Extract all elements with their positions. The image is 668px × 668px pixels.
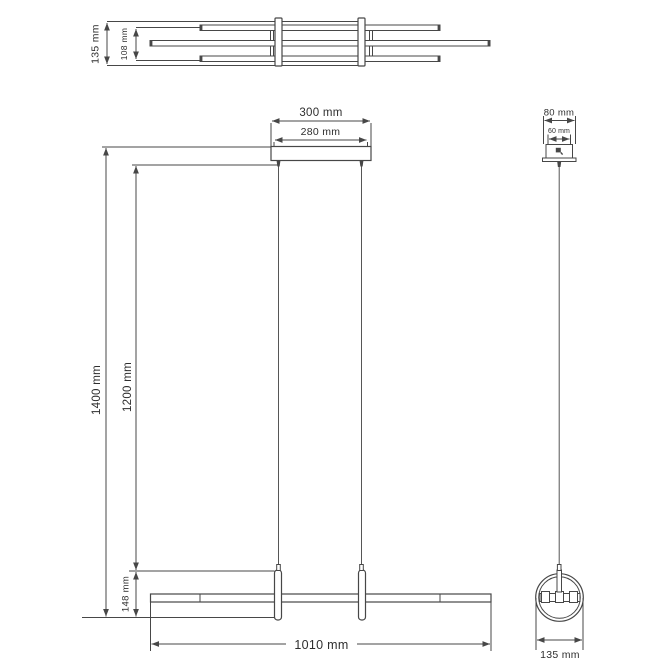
front-dim-1400-label: 1400 mm [91,365,103,415]
front-view: 300 mm 280 mm 1400 mm 1200 mm 148 mm [82,107,491,652]
top-left-ring [275,18,282,66]
side-canopy-plate [543,158,577,162]
tube-endcap [438,25,440,31]
front-dim-1200-label: 1200 mm [122,362,134,412]
side-dim-80-label: 80 mm [544,107,575,118]
top-tube-front [200,56,440,62]
front-right-cable-gland [360,161,364,167]
side-wire-cap [557,565,561,571]
side-cable-gland [258,162,561,168]
side-canopy-connector [556,148,561,153]
dimension-drawing: 135 mm 108 mm 300 mm 280 mm [0,0,668,668]
top-tube-middle [150,41,490,47]
side-tube-end-center [556,592,564,603]
side-dim-135-label: 135 mm [540,649,580,661]
front-left-cable-gland [277,161,281,167]
side-dim-135-ext [536,598,583,650]
tube-endcap [150,41,152,47]
top-tube-back [200,25,440,31]
front-right-wire-cap [360,565,364,571]
side-view: 80 mm 60 mm 135 mm [258,107,583,661]
top-dim-135-label: 135 mm [90,24,102,64]
tube-endcap [438,56,440,62]
tube-endcap [200,56,202,62]
tube-endcap [488,41,490,47]
front-dim-280-label: 280 mm [301,126,341,138]
top-view: 135 mm 108 mm [90,18,490,66]
front-left-wire-cap [277,565,281,571]
side-drop-rod [557,570,562,592]
front-dim-280-ext [274,142,368,146]
front-left-ring-edge [275,570,282,620]
drawing-svg: 135 mm 108 mm 300 mm 280 mm [0,0,668,668]
front-right-ring-edge [359,570,366,620]
front-dim-1010-label: 1010 mm [294,638,348,652]
side-tube-end-left [542,592,550,603]
side-tube-end-right [570,592,578,603]
front-dim-148-label: 148 mm [120,576,131,612]
top-dim-108-label: 108 mm [119,28,129,61]
front-canopy [271,147,371,161]
side-dim-60-label: 60 mm [548,128,570,135]
tube-endcap [200,25,202,31]
top-right-ring [358,18,365,66]
front-dim-300-label: 300 mm [299,107,342,119]
